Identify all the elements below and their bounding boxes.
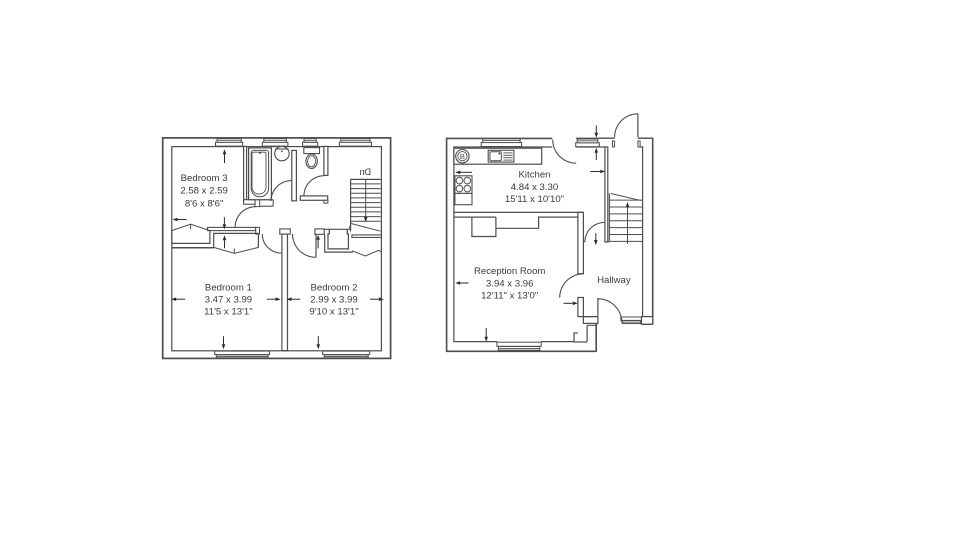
svg-text:2.99 x 3.99: 2.99 x 3.99 [310, 295, 357, 306]
svg-text:9'10 x 13'1": 9'10 x 13'1" [309, 307, 358, 318]
svg-text:12'11" x 13'0": 12'11" x 13'0" [481, 291, 538, 302]
svg-text:Bedroom 2: Bedroom 2 [311, 282, 358, 293]
svg-text:Bedroom 3: Bedroom 3 [181, 173, 228, 184]
svg-text:Reception Room: Reception Room [474, 266, 545, 277]
svg-text:Bedroom 1: Bedroom 1 [205, 282, 252, 293]
svg-text:11'5 x 13'1": 11'5 x 13'1" [204, 307, 253, 318]
svg-text:15'11 x 10'10": 15'11 x 10'10" [505, 194, 564, 205]
svg-text:Hallway: Hallway [597, 275, 631, 286]
svg-text:8'6 x 8'6": 8'6 x 8'6" [185, 198, 224, 209]
svg-text:B: B [460, 152, 465, 161]
svg-text:3.94 x 3.96: 3.94 x 3.96 [486, 278, 533, 289]
svg-text:4.84 x 3.30: 4.84 x 3.30 [511, 182, 558, 193]
svg-text:Dn: Dn [359, 167, 371, 177]
svg-text:Kitchen: Kitchen [519, 169, 551, 180]
svg-text:2.58 x 2.59: 2.58 x 2.59 [180, 186, 227, 197]
svg-text:3.47 x 3.99: 3.47 x 3.99 [205, 295, 252, 306]
